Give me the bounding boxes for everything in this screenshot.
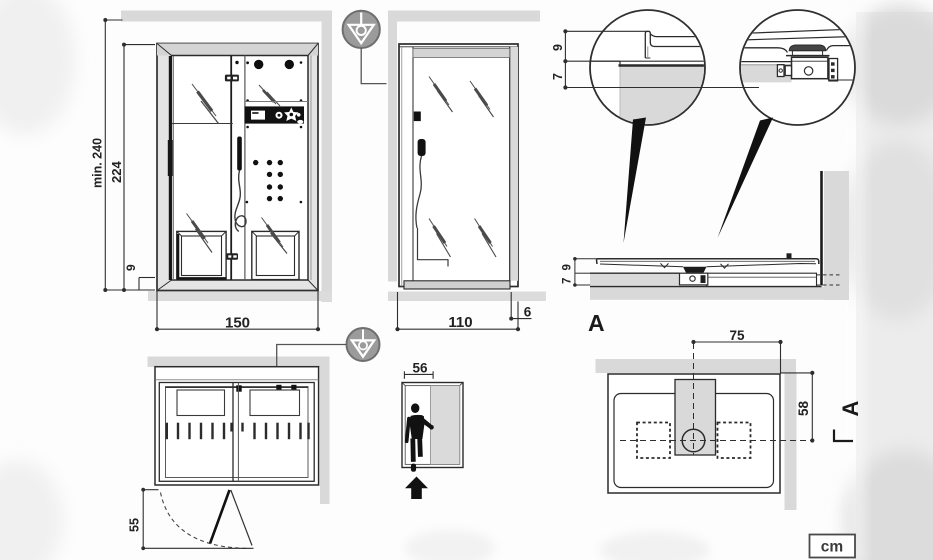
svg-text:224: 224	[109, 161, 124, 183]
svg-text:7: 7	[562, 278, 574, 284]
svg-text:A: A	[588, 310, 605, 336]
svg-text:58: 58	[796, 400, 811, 416]
svg-text:9: 9	[562, 264, 574, 270]
svg-text:150: 150	[225, 315, 250, 332]
svg-text:9: 9	[124, 264, 138, 271]
svg-text:110: 110	[448, 314, 472, 331]
svg-text:7: 7	[551, 73, 565, 80]
svg-text:55: 55	[128, 518, 142, 532]
svg-text:min. 240: min. 240	[91, 138, 105, 188]
svg-text:56: 56	[412, 361, 428, 376]
svg-text:cm: cm	[821, 539, 843, 556]
svg-text:A: A	[838, 401, 863, 417]
svg-text:9: 9	[551, 44, 565, 51]
svg-text:6: 6	[524, 305, 532, 320]
svg-text:75: 75	[729, 328, 745, 343]
